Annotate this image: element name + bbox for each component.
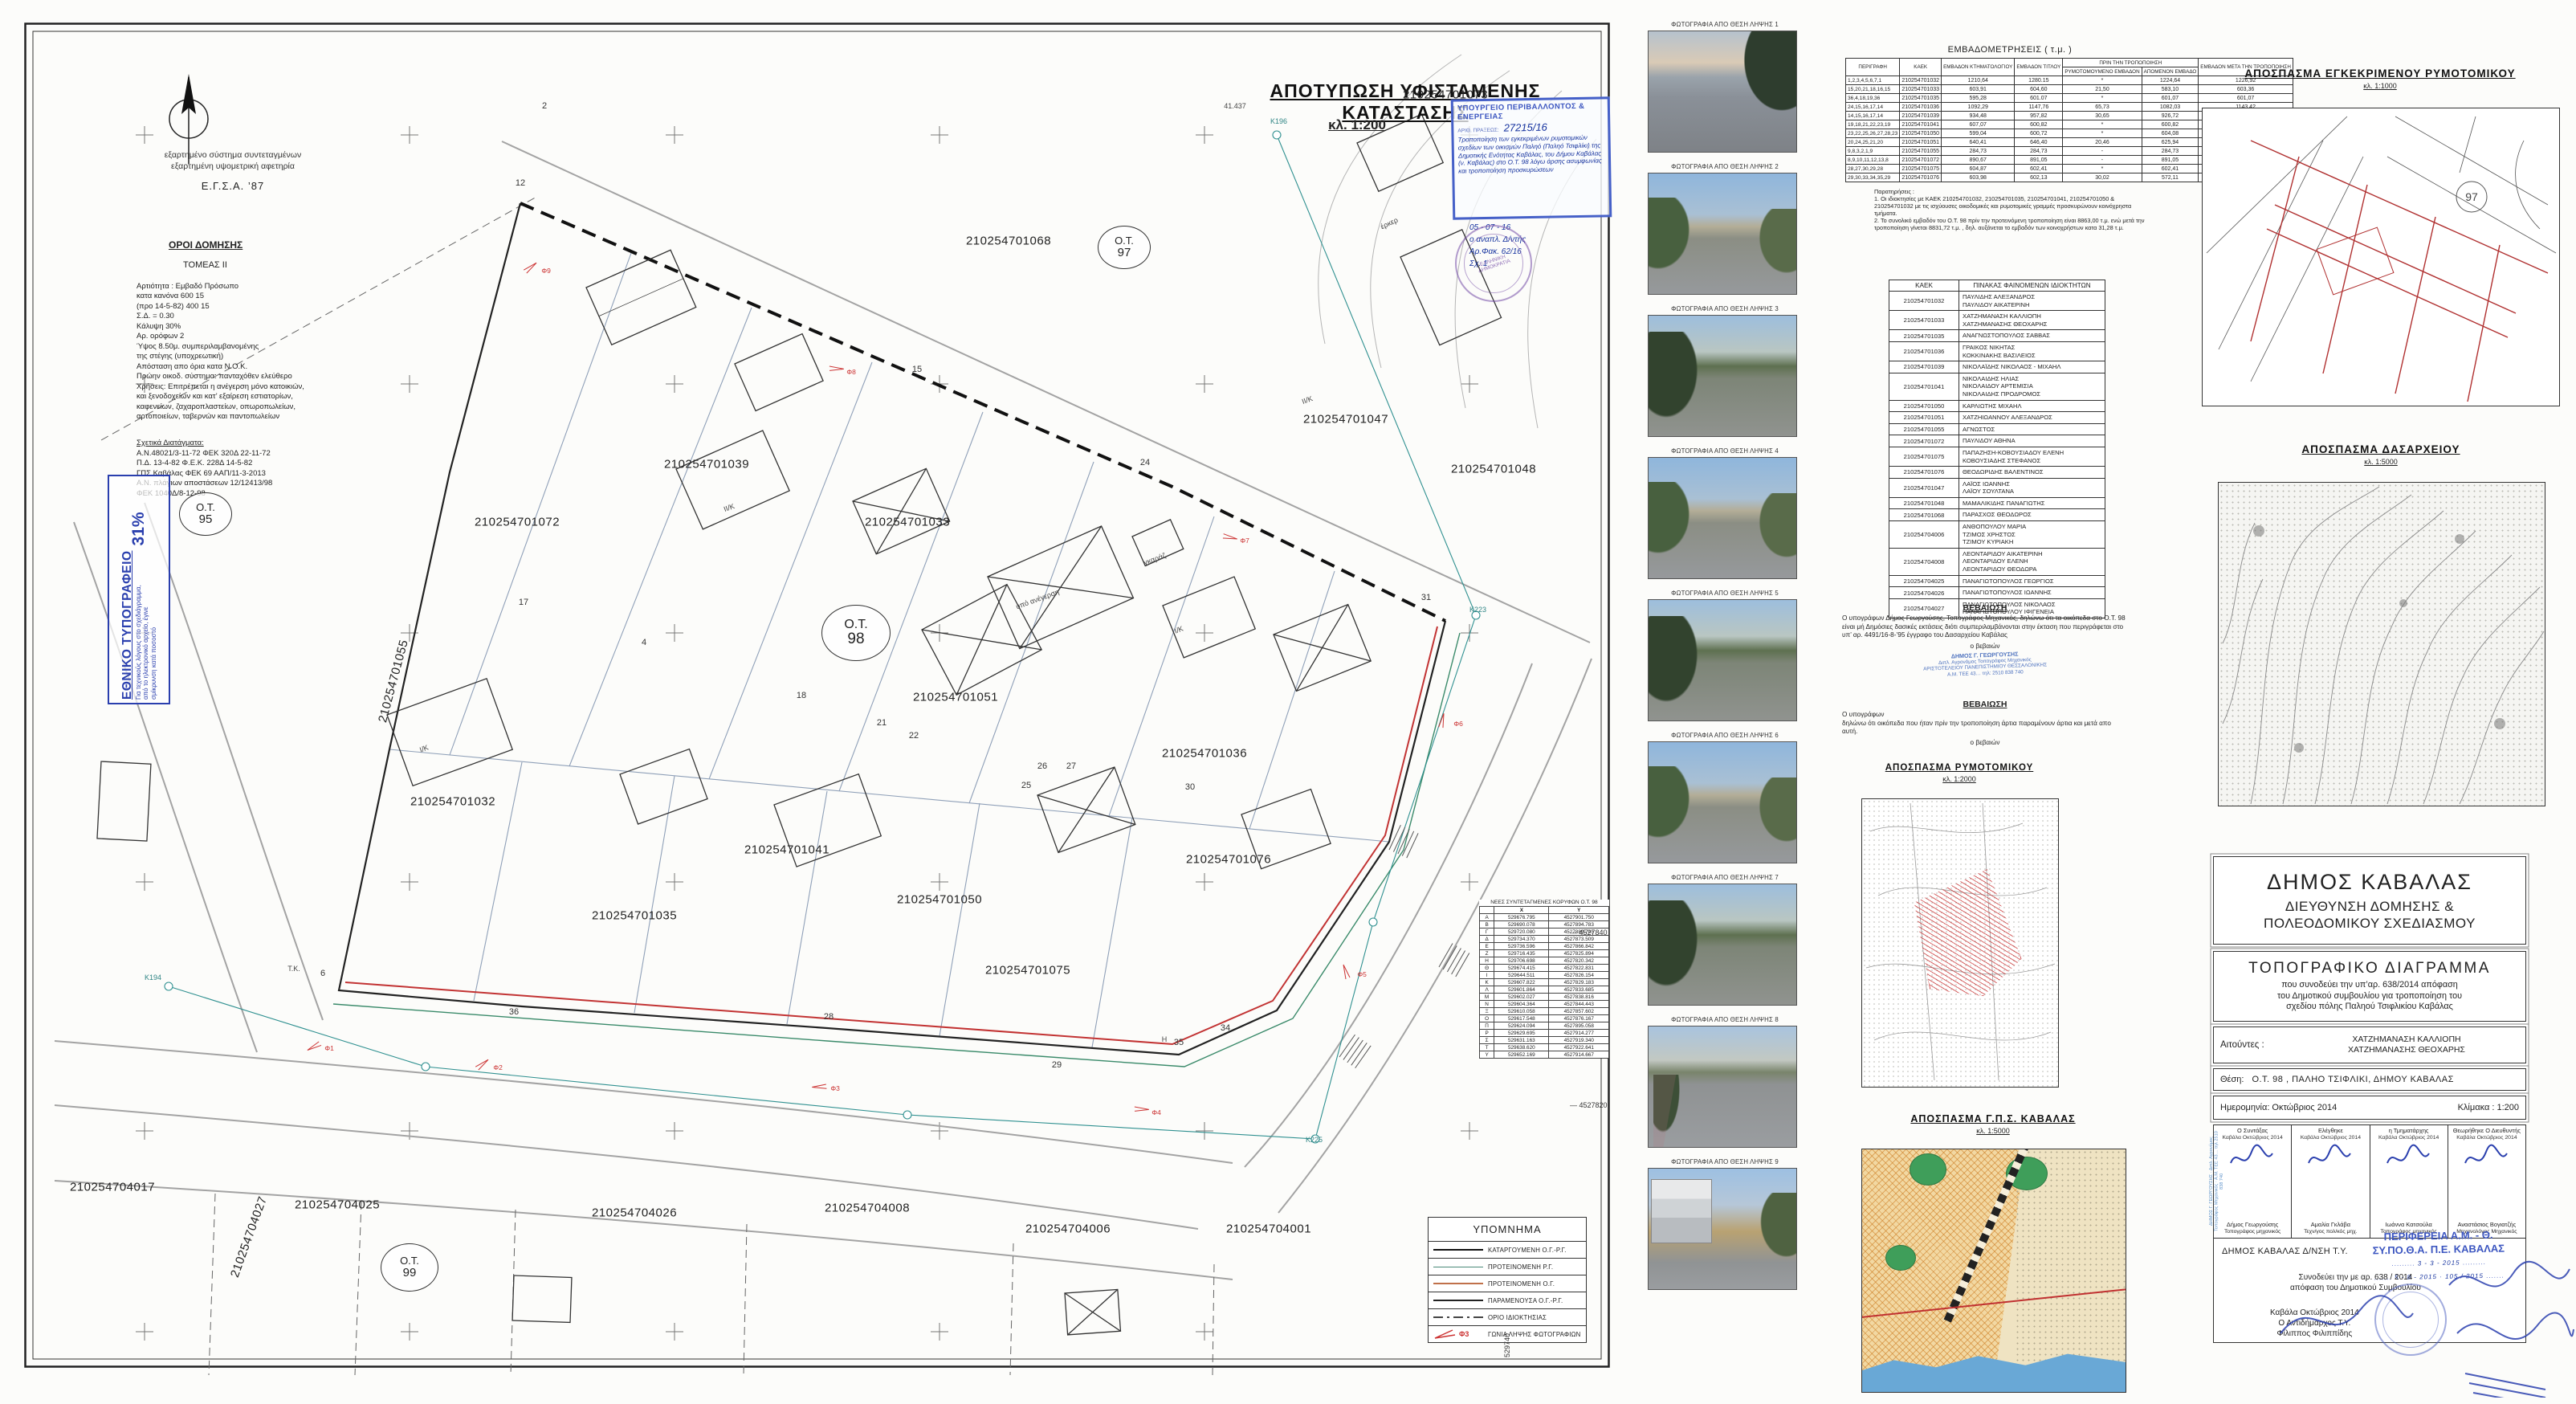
owner-row: 210254701072ΠΑΥΛΙΔΟΥ ΑΘΗΝΑ — [1889, 435, 2105, 447]
signature-scribble — [2304, 1142, 2357, 1182]
photo-caption: ΦΩΤΟΓΡΑΦΙΑ ΑΠΟ ΘΕΣΗ ΛΗΨΗΣ 9 — [1648, 1158, 1802, 1165]
owner-names: ΘΕΟΔΩΡΙΔΗΣ ΒΑΛΕΝΤΙΝΟΣ — [1959, 467, 2105, 479]
vertex-row: Η529706.6984527820.342 — [1480, 957, 1609, 965]
map-scale: κλ. 1:200 — [1277, 117, 1437, 133]
owner-kaek: 210254701051 — [1889, 412, 1959, 424]
owner-kaek: 210254701033 — [1889, 311, 1959, 330]
legend-label: ΠΡΟΤΕΙΝΟΜΕΝΗ Ρ.Γ. — [1488, 1263, 1581, 1271]
areas-row: 36,4,18,19,36210254701035595,28601.07*60… — [1846, 94, 2293, 103]
photo-angle-marker: Φ3 — [811, 1081, 840, 1092]
grid-coordinate-label: — 4527820 — [1570, 1101, 1608, 1109]
owner-names: ΧΑΤΖΗΙΩΑΝΝΟΥ ΑΛΕΞΑΝΔΡΟΣ — [1959, 412, 2105, 424]
owner-row: 210254701036ΓΡΑΙΚΟΣ ΝΙΚΗΤΑΣΚΟΚΚΙΝΑΚΗΣ ΒΑ… — [1889, 341, 2105, 361]
owner-row: 210254701032ΠΑΥΛΙΔΗΣ ΑΛΕΞΑΝΔΡΟΣΠΑΥΛΙΔΟΥ … — [1889, 292, 2105, 311]
vertex-number: 35 — [1174, 1038, 1184, 1047]
title-block-date-scale: Ημερομηνία: Οκτώβριος 2014 Κλίμακα : 1:2… — [2213, 1096, 2526, 1120]
site-plan-drawing — [24, 22, 1610, 1376]
control-point-label: Κ196 — [1270, 117, 1287, 125]
photo-item: ΦΩΤΟΓΡΑΦΙΑ ΑΠΟ ΘΕΣΗ ΛΗΨΗΣ 4 — [1648, 447, 1802, 579]
official-round-stamp: ΕΛΛΗΝΙΚΗ ΔΗΜΟΚΡΑΤΙΑ — [1455, 225, 1532, 302]
ot-number: 99 — [403, 1267, 417, 1280]
signature-column: η ΤμηματάρχηςΚαβάλα Οκτώβριος 2014Ιωάννα… — [2370, 1125, 2448, 1238]
street-photo — [1648, 1026, 1797, 1148]
parcel-number: 210254701050 — [897, 893, 982, 907]
vertex-row: Υ529652.1694527914.667 — [1480, 1051, 1609, 1059]
signature-column: ΕλέγθηκεΚαβάλα Οκτώβριος 2014Αμαλία Γκλά… — [2292, 1125, 2370, 1238]
parcel-number: 210254701032 — [410, 795, 495, 809]
parcel-number: 210254701033 — [865, 516, 950, 529]
owner-names: ΧΑΤΖΗΜΑΝΑΣΗ ΚΑΛΛΙΟΠΗΧΑΤΖΗΜΑΝΑΣΗΣ ΘΕΟΧΑΡΗ… — [1959, 311, 2105, 330]
photo-item: ΦΩΤΟΓΡΑΦΙΑ ΑΠΟ ΘΕΣΗ ΛΗΨΗΣ 2 — [1648, 163, 1802, 295]
photo-item: ΦΩΤΟΓΡΑΦΙΑ ΑΠΟ ΘΕΣΗ ΛΗΨΗΣ 5 — [1648, 590, 1802, 721]
owner-names: ΜΑΜΑΛΙΚΙΔΗΣ ΠΑΝΑΓΙΩΤΗΣ — [1959, 497, 2105, 509]
signature-date: Καβάλα Οκτώβριος 2014 — [2456, 1135, 2517, 1141]
owner-names: ΠΑΡΑΣΧΟΣ ΘΕΟΔΩΡΟΣ — [1959, 509, 2105, 521]
parcel-number: 210254704001 — [1226, 1222, 1311, 1236]
signature-column: Ο ΣυντάξαςΚαβάλα Οκτώβριος 2014Δήμος Γεω… — [2214, 1125, 2292, 1238]
vertex-number: 12 — [516, 178, 525, 188]
ot-prefix: Ο.Τ. — [844, 618, 867, 632]
owner-row: 210254704025ΠΑΝΑΓΙΩΤΟΠΟΥΛΟΣ ΓΕΩΡΓΙΟΣ — [1889, 575, 2105, 587]
coord-system-note: εξαρτημένο σύστημα συντεταγμένωνεξαρτημέ… — [112, 149, 353, 172]
vertex-number: 21 — [877, 718, 887, 728]
parcel-number: 210254701075 — [985, 964, 1070, 977]
owner-kaek: 210254701035 — [1889, 330, 1959, 342]
rym-excerpt-header: ΑΠΟΣΠΑΣΜΑ ΡΥΜΟΤΟΜΙΚΟΥ κλ. 1:2000 — [1861, 763, 2057, 783]
owner-kaek: 210254701036 — [1889, 341, 1959, 361]
vertex-row: Κ529607.8224527829.183 — [1480, 979, 1609, 986]
owner-kaek: 210254704008 — [1889, 548, 1959, 575]
vertex-row: Τ529638.6204527922.641 — [1480, 1044, 1609, 1051]
vertex-row: Ρ529629.6954527914.277 — [1480, 1030, 1609, 1037]
owner-row: 210254701033ΧΑΤΖΗΜΑΝΑΣΗ ΚΑΛΛΙΟΠΗΧΑΤΖΗΜΑΝ… — [1889, 311, 2105, 330]
parcel-number: 210254701073 — [1403, 88, 1488, 102]
parcel-number: 210254704017 — [70, 1181, 155, 1194]
owner-row: 210254701048ΜΑΜΑΛΙΚΙΔΗΣ ΠΑΝΑΓΙΩΤΗΣ — [1889, 497, 2105, 509]
vertex-number: 24 — [1140, 458, 1150, 467]
signature-date: Καβάλα Οκτώβριος 2014 — [2378, 1135, 2439, 1141]
survey-sheet: ΑΠΟΤΥΠΩΣΗ ΥΦΙΣΤΑΜΕΝΗΣ ΚΑΤΑΣΤΑΣΗΣ κλ. 1:2… — [0, 0, 2576, 1404]
owner-names: ΠΑΝΑΓΙΩΤΟΠΟΥΛΟΣ ΓΕΩΡΓΙΟΣ — [1959, 575, 2105, 587]
legend-label: ΟΡΙΟ ΙΔΙΟΚΤΗΣΙΑΣ — [1488, 1314, 1581, 1321]
owner-row: 210254701050ΚΑΡΛΙΩΤΗΣ ΜΙΧΑΗΛ — [1889, 400, 2105, 412]
area-measurements-block: ΕΜΒΑΔΟΜΕΤΡΗΣΕΙΣ ( τ.μ. ) ΠΕΡΙΓΡΑΦΗ ΚΑΕΚ … — [1845, 45, 2175, 231]
vertex-row: Π529624.0944527895.058 — [1480, 1022, 1609, 1030]
owner-kaek: 210254701055 — [1889, 423, 1959, 435]
signature-scribble — [2226, 1142, 2279, 1182]
parcel-number: 210254701051 — [913, 691, 998, 704]
orio-line-icon — [1433, 1313, 1483, 1321]
reduction-percent: 31% — [129, 512, 149, 545]
vertex-row: Σ529631.1634527919.340 — [1480, 1037, 1609, 1044]
street-photo — [1648, 31, 1797, 153]
owner-row: 210254701055ΑΓΝΩΣΤΟΣ — [1889, 423, 2105, 435]
gps-excerpt-map — [1861, 1149, 2126, 1393]
vertex-number: 31 — [1421, 593, 1431, 602]
signature-date: Καβάλα Οκτώβριος 2014 — [2301, 1135, 2361, 1141]
grid-coordinate-label: — 4527840 — [1570, 929, 1608, 937]
municipality-name: ΔΗΜΟΣ ΚΑΒΑΛΑΣ — [2267, 870, 2472, 895]
legend-item: ΠΡΟΤΕΙΝΟΜΕΝΗ Ο.Γ. — [1429, 1275, 1586, 1292]
owner-kaek: 210254701041 — [1889, 373, 1959, 400]
vertex-number: 36 — [509, 1007, 519, 1017]
approval-signature-scribble — [2441, 1253, 2576, 1398]
photo-angle-marker: Φ8 — [827, 365, 856, 376]
owners-table-block: ΚΑΕΚΠΙΝΑΚΑΣ ΦΑΙΝΟΜΕΝΩΝ ΙΔΙΟΚΤΗΤΩΝ 210254… — [1889, 280, 2105, 618]
vertex-row: Β529690.0784527894.783 — [1480, 921, 1609, 929]
photo-caption: ΦΩΤΟΓΡΑΦΙΑ ΑΠΟ ΘΕΣΗ ΛΗΨΗΣ 1 — [1648, 21, 1802, 28]
owner-kaek: 210254704025 — [1889, 575, 1959, 587]
signature-role: Ο Συντάξας — [2237, 1128, 2268, 1135]
owner-kaek: 210254704026 — [1889, 587, 1959, 599]
photo-angle-marker: Φ5 — [1338, 967, 1367, 978]
vertex-number: 26 — [1037, 761, 1047, 771]
photo-line-icon: Φ3 — [1433, 1330, 1483, 1338]
owner-row: 210254701051ΧΑΤΖΗΙΩΑΝΝΟΥ ΑΛΕΞΑΝΔΡΟΣ — [1889, 412, 2105, 424]
building-label: 41.437 — [1224, 102, 1246, 110]
grid-coordinate-label: 529740 — [1503, 1333, 1511, 1357]
title-block-doc: ΤΟΠΟΓΡΑΦΙΚΟ ΔΙΑΓΡΑΜΜΑ που συνοδεύει την … — [2213, 951, 2526, 1022]
signer-name: Ιωάννα Κατσούλα — [2385, 1222, 2431, 1229]
photo-caption: ΦΩΤΟΓΡΑΦΙΑ ΑΠΟ ΘΕΣΗ ΛΗΨΗΣ 4 — [1648, 447, 1802, 455]
vertex-row: Ν529604.3644527844.443 — [1480, 1001, 1609, 1008]
owner-kaek: 210254704006 — [1889, 521, 1959, 549]
title-block-applicants: Αιτούντες : ΧΑΤΖΗΜΑΝΑΣΗ ΚΑΛΛΙΟΠΗΧΑΤΖΗΜΑΝ… — [2213, 1026, 2526, 1063]
owner-kaek: 210254701032 — [1889, 292, 1959, 311]
photo-caption: ΦΩΤΟΓΡΑΦΙΑ ΑΠΟ ΘΕΣΗ ΛΗΨΗΣ 7 — [1648, 874, 1802, 881]
photo-angle-marker: Φ2 — [474, 1060, 503, 1071]
signer-name: Αμαλία Γκλάβα — [2311, 1222, 2350, 1229]
vertex-number: 2 — [542, 101, 547, 111]
block-label-ot-95: Ο.Τ.95 — [179, 492, 232, 536]
ot-prefix: Ο.Τ. — [400, 1255, 419, 1267]
photo-item: ΦΩΤΟΓΡΑΦΙΑ ΑΠΟ ΘΕΣΗ ΛΗΨΗΣ 7 — [1648, 874, 1802, 1006]
owner-names: ΚΑΡΛΙΩΤΗΣ ΜΙΧΑΗΛ — [1959, 400, 2105, 412]
photo-item: ΦΩΤΟΓΡΑΦΙΑ ΑΠΟ ΘΕΣΗ ΛΗΨΗΣ 1 — [1648, 21, 1802, 153]
ot-prefix: Ο.Τ. — [1115, 235, 1134, 247]
engineer-vertical-stamp: ΔΗΜΟΣ Γ. ΓΕΩΡΓΟΥΣΗΣ · Διπλ. Αγρονόμος Το… — [2209, 1130, 2233, 1233]
certification-plots: ΒΕΒΑΙΩΣΗ Ο υπογράφων δηλώνω ότι οικόπεδα… — [1842, 700, 2128, 747]
parcel-number: 210254701039 — [664, 458, 749, 471]
owner-kaek: 210254701068 — [1889, 509, 1959, 521]
owner-kaek: 210254701072 — [1889, 435, 1959, 447]
ministry-stamp: ΥΠΟΥΡΓΕΙΟ ΠΕΡΙΒΑΛΛΟΝΤΟΣ & ΕΝΕΡΓΕΙΑΣ ΑΡΙΘ… — [1451, 96, 1612, 219]
forest-excerpt-map — [2218, 482, 2545, 806]
owner-row: 210254701075ΠΑΠΑΖΗΣΗ-ΚΟΒΟΥΣΙΑΔΟΥ ΕΛΕΝΗΚΟ… — [1889, 447, 2105, 466]
vertex-number: 28 — [824, 1012, 834, 1022]
street-photo — [1648, 315, 1797, 437]
owner-names: ΑΓΝΩΣΤΟΣ — [1959, 423, 2105, 435]
building-label: Η — [1162, 1035, 1168, 1043]
vertex-row: Ε529736.5964527866.842 — [1480, 943, 1609, 950]
legend-label: ΠΑΡΑΜΕΝΟΥΣΑ Ο.Γ.-Ρ.Γ. — [1488, 1297, 1581, 1304]
owner-names: ΠΑΥΛΙΔΟΥ ΑΘΗΝΑ — [1959, 435, 2105, 447]
katarg-line-icon — [1433, 1246, 1483, 1254]
signer-name: Δήμος Γεωργούσης — [2227, 1222, 2278, 1229]
block-label-ot-99: Ο.Τ.99 — [381, 1243, 438, 1292]
ot-number: 95 — [199, 513, 213, 526]
vertex-number: 30 — [1185, 782, 1195, 792]
vertex-number: 18 — [797, 691, 806, 700]
certification-forest: ΒΕΒΑΙΩΣΗ Ο υπογράφων Δήμος Γεωργούσης, Τ… — [1842, 604, 2128, 676]
owner-row: 210254704008ΛΕΟΝΤΑΡΙΔΟΥ ΑΙΚΑΤΕΡΙΝΗΛΕΟΝΤΑ… — [1889, 548, 2105, 575]
control-point-label: Κ194 — [145, 973, 161, 982]
parcel-number: 210254701036 — [1162, 747, 1247, 761]
street-photo — [1648, 457, 1797, 579]
vertex-number: 15 — [912, 365, 922, 374]
owner-names: ΠΑΝΑΓΙΩΤΟΠΟΥΛΟΣ ΙΩΑΝΝΗΣ — [1959, 587, 2105, 599]
legend-item: ΟΡΙΟ ΙΔΙΟΚΤΗΣΙΑΣ — [1429, 1309, 1586, 1326]
title-block-location: Θέση: Ο.Τ. 98 , ΠΑΛΗΟ ΤΣΙΦΛΙΚΙ, ΔΗΜΟΥ ΚΑ… — [2213, 1068, 2526, 1091]
forest-excerpt-header: ΑΠΟΣΠΑΣΜΑ ΔΑΣΑΡΧΕΙΟΥ κλ. 1:5000 — [2218, 443, 2544, 466]
block-label-ot-97: Ο.Τ.97 — [1098, 226, 1151, 269]
parcel-number: 210254704026 — [592, 1206, 677, 1220]
parcel-number: 210254701041 — [744, 843, 829, 857]
protrg-line-icon — [1433, 1263, 1483, 1271]
vertex-number: 4 — [642, 638, 646, 647]
owner-kaek: 210254701076 — [1889, 467, 1959, 479]
owner-names: ΛΕΟΝΤΑΡΙΔΟΥ ΑΙΚΑΤΕΡΙΝΗΛΕΟΝΤΑΡΙΔΟΥ ΕΛΕΝΗΛ… — [1959, 548, 2105, 575]
gps-excerpt-header: ΑΠΟΣΠΑΣΜΑ Γ.Π.Σ. ΚΑΒΑΛΑΣ κλ. 1:5000 — [1861, 1113, 2125, 1135]
parcel-number: 210254701048 — [1451, 463, 1536, 476]
owner-row: 210254701047ΛΑΪΟΣ ΙΩΑΝΝΗΣΛΑΪΟΥ ΣΟΥΛΤΑΝΑ — [1889, 478, 2105, 497]
engineer-stamp: ΔΗΜΟΣ Γ. ΓΕΩΡΓΟΥΣΗΣ Διπλ. Αγρονόμος Τοπο… — [1842, 647, 2129, 682]
street-photo — [1648, 1168, 1797, 1290]
areas-notes: Παρατηρήσεις : 1. Οι ιδιοκτησίες με ΚΑΕΚ… — [1874, 188, 2147, 231]
photo-angle-marker: Φ6 — [1434, 716, 1463, 728]
parcel-number: 210254701047 — [1303, 413, 1388, 427]
photo-caption: ΦΩΤΟΓΡΑΦΙΑ ΑΠΟ ΘΕΣΗ ΛΗΨΗΣ 3 — [1648, 305, 1802, 312]
legend-label: ΓΩΝΙΑ ΛΗΨΗΣ ΦΩΤΟΓΡΑΦΙΩΝ — [1488, 1331, 1581, 1338]
ot-prefix: Ο.Τ. — [196, 502, 215, 513]
legend-item: ΚΑΤΑΡΓΟΥΜΕΝΗ Ο.Γ.-Ρ.Γ. — [1429, 1242, 1586, 1259]
owner-names: ΝΙΚΟΛΑΪΔΗΣ ΝΙΚΟΛΑΟΣ - ΜΙΧΑΗΛ — [1959, 361, 2105, 373]
vertex-row: Ι529644.5114527826.154 — [1480, 972, 1609, 979]
title-block-authority: ΔΗΜΟΣ ΚΑΒΑΛΑΣ ΔΙΕΥΘΥΝΣΗ ΔΟΜΗΣΗΣ &ΠΟΛΕΟΔΟ… — [2213, 856, 2526, 945]
owner-names: ΑΝΑΓΝΩΣΤΟΠΟΥΛΟΣ ΣΑΒΒΑΣ — [1959, 330, 2105, 342]
legend-title: ΥΠΟΜΝΗΜΑ — [1429, 1218, 1586, 1242]
vertex-number: 34 — [1221, 1023, 1230, 1033]
legend-item: ΠΡΟΤΕΙΝΟΜΕΝΗ Ρ.Γ. — [1429, 1259, 1586, 1275]
owner-row: 210254704026ΠΑΝΑΓΙΩΤΟΠΟΥΛΟΣ ΙΩΑΝΝΗΣ — [1889, 587, 2105, 599]
owner-row: 210254704006ΑΝΘΟΠΟΥΛΟΥ ΜΑΡΙΑΤΖΙΜΟΣ ΧΡΗΣΤ… — [1889, 521, 2105, 549]
street-photo — [1648, 173, 1797, 295]
coord-system-name: Ε.Γ.Σ.Α. ’87 — [112, 180, 353, 192]
street-photo — [1648, 599, 1797, 721]
printing-office-stamp: ΕΘΝΙΚΟ ΤΥΠΟΓΡΑΦΕΙΟ Για τεχνικούς λόγους … — [108, 475, 170, 704]
owner-names: ΓΡΑΙΚΟΣ ΝΙΚΗΤΑΣΚΟΚΚΙΝΑΚΗΣ ΒΑΣΙΛΕΙΟΣ — [1959, 341, 2105, 361]
vertex-number: 25 — [1021, 781, 1031, 790]
vertex-number: 6 — [320, 969, 325, 978]
ot-number: 98 — [847, 631, 864, 647]
photo-caption: ΦΩΤΟΓΡΑΦΙΑ ΑΠΟ ΘΕΣΗ ΛΗΨΗΣ 8 — [1648, 1016, 1802, 1023]
ot-number: 97 — [1118, 247, 1131, 259]
site-plan-panel: ΑΠΟΤΥΠΩΣΗ ΥΦΙΣΤΑΜΕΝΗΣ ΚΑΤΑΣΤΑΣΗΣ κλ. 1:2… — [24, 22, 1610, 1376]
vertex-number: 27 — [1066, 761, 1076, 771]
owner-names: ΠΑΥΛΙΔΗΣ ΑΛΕΞΑΝΔΡΟΣΠΑΥΛΙΔΟΥ ΑΙΚΑΤΕΡΙΝΗ — [1959, 292, 2105, 311]
owner-row: 210254701039ΝΙΚΟΛΑΪΔΗΣ ΝΙΚΟΛΑΟΣ - ΜΙΧΑΗΛ — [1889, 361, 2105, 373]
approval-signature-scribble-2 — [2272, 1285, 2417, 1357]
photo-caption: ΦΩΤΟΓΡΑΦΙΑ ΑΠΟ ΘΕΣΗ ΛΗΨΗΣ 5 — [1648, 590, 1802, 597]
photo-angle-marker: Φ4 — [1132, 1105, 1161, 1116]
owner-row: 210254701068ΠΑΡΑΣΧΟΣ ΘΕΟΔΩΡΟΣ — [1889, 509, 2105, 521]
vertex-number: 17 — [519, 598, 528, 607]
parcel-number: 210254704025 — [295, 1198, 380, 1212]
parcel-number: 210254704008 — [825, 1202, 910, 1215]
photo-angle-marker: Φ7 — [1221, 533, 1249, 545]
approved-plan-header: ΑΠΟΣΠΑΣΜΑ ΕΓΚΕΚΡΙΜΕΝΟΥ ΡΥΜΟΤΟΜΙΚΟΥ κλ. 1… — [2202, 67, 2558, 90]
legend-label: ΚΑΤΑΡΓΟΥΜΕΝΗ Ο.Γ.-Ρ.Γ. — [1488, 1247, 1581, 1254]
block-label-ot-98: Ο.Τ.98 — [821, 605, 891, 661]
owner-kaek: 210254701075 — [1889, 447, 1959, 466]
parcel-number: 210254701035 — [592, 909, 677, 923]
parcel-number: 210254701072 — [475, 516, 560, 529]
protog-line-icon — [1433, 1280, 1483, 1288]
photo-item: ΦΩΤΟΓΡΑΦΙΑ ΑΠΟ ΘΕΣΗ ΛΗΨΗΣ 8 — [1648, 1016, 1802, 1148]
areas-title: ΕΜΒΑΔΟΜΕΤΡΗΣΕΙΣ ( τ.μ. ) — [1845, 45, 2175, 55]
owner-kaek: 210254701048 — [1889, 497, 1959, 509]
building-terms: ΟΡΟΙ ΔΟΜΗΣΗΣ ΤΟΜΕΑΣ II Αρτιότητα : Εμβαδ… — [137, 230, 377, 509]
street-photo — [1648, 741, 1797, 863]
vertex-row: Λ529601.8644527833.685 — [1480, 986, 1609, 994]
legend-item: ΠΑΡΑΜΕΝΟΥΣΑ Ο.Γ.-Ρ.Γ. — [1429, 1292, 1586, 1309]
photo-item: ΦΩΤΟΓΡΑΦΙΑ ΑΠΟ ΘΕΣΗ ΛΗΨΗΣ 6 — [1648, 732, 1802, 863]
rym-excerpt-drawing — [1861, 798, 2059, 1088]
signature-scribble — [2382, 1142, 2435, 1182]
map-legend: ΥΠΟΜΝΗΜΑ ΚΑΤΑΡΓΟΥΜΕΝΗ Ο.Γ.-Ρ.Γ.ΠΡΟΤΕΙΝΟΜ… — [1428, 1217, 1587, 1343]
vertex-row: Ζ529716.4354527825.894 — [1480, 950, 1609, 957]
param-line-icon — [1433, 1296, 1483, 1304]
parcel-number: 210254701068 — [966, 235, 1051, 248]
vertex-row: Μ529602.0274527838.816 — [1480, 994, 1609, 1001]
vertex-row: Θ529674.4154527822.831 — [1480, 965, 1609, 972]
signature-role: Ελέγθηκε — [2318, 1128, 2343, 1135]
building-label: Τ.Κ. — [287, 965, 300, 973]
vertex-number: 29 — [1052, 1060, 1062, 1070]
signature-role: Θεωρήθηκε Ο Διευθυντής — [2453, 1128, 2521, 1135]
vertex-row: Ο529617.5484527876.167 — [1480, 1015, 1609, 1022]
parcel-number: 210254701076 — [1186, 853, 1271, 867]
owner-kaek: 210254701039 — [1889, 361, 1959, 373]
owner-row: 210254701076ΘΕΟΔΩΡΙΔΗΣ ΒΑΛΕΝΤΙΝΟΣ — [1889, 467, 2105, 479]
legend-label: ΠΡΟΤΕΙΝΟΜΕΝΗ Ο.Γ. — [1488, 1280, 1581, 1288]
control-point-label: Κ225 — [1306, 1136, 1323, 1144]
vertex-number: 22 — [909, 731, 919, 741]
photo-strip: ΦΩΤΟΓΡΑΦΙΑ ΑΠΟ ΘΕΣΗ ΛΗΨΗΣ 1ΦΩΤΟΓΡΑΦΙΑ ΑΠ… — [1648, 21, 1802, 1300]
street-photo — [1648, 884, 1797, 1006]
owner-kaek: 210254701050 — [1889, 400, 1959, 412]
photo-caption: ΦΩΤΟΓΡΑΦΙΑ ΑΠΟ ΘΕΣΗ ΛΗΨΗΣ 2 — [1648, 163, 1802, 170]
control-point-label: Κ223 — [1469, 606, 1486, 614]
owners-table: ΚΑΕΚΠΙΝΑΚΑΣ ΦΑΙΝΟΜΕΝΩΝ ΙΔΙΟΚΤΗΤΩΝ 210254… — [1889, 280, 2105, 618]
owner-names: ΝΙΚΟΛΑΙΔΗΣ ΗΛΙΑΣΝΙΚΟΛΑΙΔΟΥ ΑΡΤΕΜΙΣΙΑΝΙΚΟ… — [1959, 373, 2105, 400]
approval-office: ΔΗΜΟΣ ΚΑΒΑΛΑΣ Δ/ΝΣΗ Τ.Υ. — [2222, 1247, 2348, 1256]
owner-row: 210254701041ΝΙΚΟΛΑΙΔΗΣ ΗΛΙΑΣΝΙΚΟΛΑΙΔΟΥ Α… — [1889, 373, 2105, 400]
owner-kaek: 210254701047 — [1889, 478, 1959, 497]
approved-plan-ot-label: 97 — [2465, 190, 2478, 203]
signature-column: Θεωρήθηκε Ο ΔιευθυντήςΚαβάλα Οκτώβριος 2… — [2448, 1125, 2525, 1238]
photo-item: ΦΩΤΟΓΡΑΦΙΑ ΑΠΟ ΘΕΣΗ ΛΗΨΗΣ 3 — [1648, 305, 1802, 437]
doc-title: ΤΟΠΟΓΡΑΦΙΚΟ ΔΙΑΓΡΑΜΜΑ — [2248, 960, 2491, 977]
photo-angle-marker: Φ1 — [305, 1041, 334, 1052]
photo-angle-marker: Φ9 — [522, 263, 551, 275]
vertex-coordinates-table: ΝΕΕΣ ΣΥΝΤΕΤΑΓΜΕΝΕΣ ΚΟΡΥΦΩΝ Ο.Τ. 98 XYΑ52… — [1479, 900, 1609, 1059]
photo-caption: ΦΩΤΟΓΡΑΦΙΑ ΑΠΟ ΘΕΣΗ ΛΗΨΗΣ 6 — [1648, 732, 1802, 739]
owner-names: ΑΝΘΟΠΟΥΛΟΥ ΜΑΡΙΑΤΖΙΜΟΣ ΧΡΗΣΤΟΣΤΖΙΜΟΥ ΚΥΡ… — [1959, 521, 2105, 549]
signature-role: η Τμηματάρχης — [2389, 1128, 2429, 1135]
photo-item: ΦΩΤΟΓΡΑΦΙΑ ΑΠΟ ΘΕΣΗ ΛΗΨΗΣ 9 — [1648, 1158, 1802, 1290]
vertex-row: Ξ529610.0584527857.602 — [1480, 1008, 1609, 1015]
owner-names: ΛΑΪΟΣ ΙΩΑΝΝΗΣΛΑΪΟΥ ΣΟΥΛΤΑΝΑ — [1959, 478, 2105, 497]
owner-row: 210254701035ΑΝΑΓΝΩΣΤΟΠΟΥΛΟΣ ΣΑΒΒΑΣ — [1889, 330, 2105, 342]
vertex-row: Α529676.7954527901.750 — [1480, 914, 1609, 921]
approved-plan-drawing: 97 — [2202, 108, 2560, 406]
owner-names: ΠΑΠΑΖΗΣΗ-ΚΟΒΟΥΣΙΑΔΟΥ ΕΛΕΝΗΚΟΒΟΥΣΙΑΔΗΣ ΣΤ… — [1959, 447, 2105, 466]
parcel-number: 210254704006 — [1025, 1222, 1111, 1236]
signature-scribble — [2460, 1142, 2513, 1182]
